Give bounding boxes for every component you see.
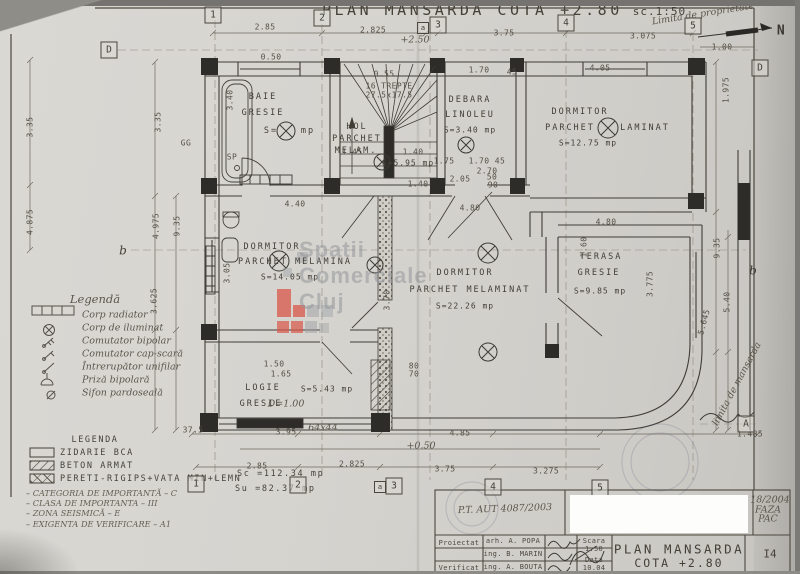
legend-hand-item: Corp de iluminat	[82, 323, 163, 334]
handwritten-label: PAC	[758, 514, 778, 525]
dimension-label: 27.5x17.5	[366, 91, 413, 100]
redaction-box	[570, 495, 748, 533]
dimension-label: 3.75	[494, 29, 515, 38]
ceiling-lamp-icon	[479, 343, 497, 361]
room-label: DORMITOR	[552, 107, 609, 117]
room-label: PARCHET MELAMINA	[238, 257, 352, 267]
axis-grid	[118, 20, 758, 480]
axis-bubble-4: 4	[558, 15, 575, 32]
room-label: S=	[264, 126, 278, 136]
swatch-zidarie	[30, 448, 54, 457]
room-label: PARCHET	[545, 123, 595, 133]
room-label: mp	[301, 126, 315, 136]
room-label: DORMITOR	[437, 268, 494, 278]
ceiling-lamp-icon	[598, 118, 618, 138]
axis-bubble-3: 3	[386, 478, 403, 495]
switch-stair-symbol	[43, 351, 54, 360]
room-label: S=3.40 mp	[444, 126, 496, 135]
axis-bubble-1: 1	[205, 7, 222, 24]
axis-bubble-1: 1	[188, 476, 205, 493]
dimension-label: 3.05	[223, 263, 232, 284]
dimension-label: 1.40	[403, 148, 424, 157]
dimension-label: 2.825	[360, 26, 386, 35]
dimension-label: 3.775	[646, 271, 655, 297]
legend-print-item: BETON ARMAT	[60, 461, 134, 471]
legend-hand-item: Comutator bipolar	[82, 336, 171, 347]
axis-bubble-D: D	[101, 42, 118, 59]
ceiling-lamp-icon	[458, 137, 474, 153]
legend-hand-item: Priză bipolară	[82, 375, 150, 386]
axis-bubble-5: 5	[685, 18, 702, 35]
room-label: PARCHET MELAMINAT	[410, 285, 531, 295]
dimension-label: 0.50	[261, 53, 282, 62]
handwritten-label: +2.50	[400, 35, 429, 46]
dimension-label: 16 TREPTE	[366, 82, 413, 91]
switch-single-symbol	[43, 363, 54, 373]
note-line: – CATEGORIA DE IMPORTANTĂ – C	[26, 488, 177, 498]
drawing-title: PLAN MANSARDA COTA +2.80 sc.1:50	[322, 1, 686, 19]
dimension-label: 1.75	[434, 157, 455, 166]
titleblock-label: 10.04	[583, 564, 606, 572]
axis-bubble-2: 2	[314, 10, 331, 27]
dimension-label: 4.85	[450, 429, 471, 438]
handwritten-label: 64x44	[308, 423, 338, 434]
floor-drain-symbol	[47, 391, 55, 399]
room-label: S=9.85 mp	[574, 287, 626, 296]
dimension-label: 1.65	[271, 370, 292, 379]
dimension-label: 3.625	[150, 288, 159, 314]
room-label: LAMINAT	[620, 123, 670, 133]
dimension-label: 3.35	[154, 112, 163, 133]
dimension-label: 2.85	[255, 23, 276, 32]
dimension-label: 1.975	[722, 77, 731, 103]
dimension-label: 37.5	[183, 426, 204, 435]
titleblock-label: 1:50	[585, 545, 603, 553]
titleblock-label: arh. A. POPA	[486, 537, 540, 545]
legend-hand-item: Întrerupător unifilar	[82, 362, 180, 373]
radiator-symbol	[32, 306, 74, 315]
handwritten-label: +0.50	[406, 441, 435, 452]
titleblock-label: I4	[763, 548, 776, 561]
dimension-label: GG	[181, 139, 191, 148]
note-line: – ZONA SEISMICĂ – E	[26, 508, 120, 518]
axis-bubble-3: 3	[430, 17, 447, 34]
dimension-label: 2.825	[339, 460, 365, 469]
dimension-label: N	[777, 24, 785, 39]
dimension-label: 45	[507, 68, 517, 77]
room-label: PARCHET	[332, 134, 382, 144]
dimension-label: 4.40	[285, 200, 306, 209]
axis-bubble-a: a	[374, 481, 386, 493]
axis-bubble-5: 5	[592, 480, 609, 497]
dimension-label: 4.875	[26, 209, 35, 235]
axis-bubble-D: D	[752, 60, 769, 77]
titleblock-label: Scara	[583, 537, 606, 545]
legend-print-title: LEGENDA	[71, 435, 118, 445]
area-stat-label: Sc =112.34 mp	[237, 469, 324, 479]
axis-bubble-a: a	[417, 22, 429, 34]
dimension-label: SP	[227, 153, 237, 162]
room-label: S=5.95 mp	[382, 159, 434, 168]
titleblock-label: Verificat	[439, 564, 480, 572]
legend-hand-item: Comutator cap-scară	[82, 349, 183, 360]
legend-symbols	[32, 306, 74, 399]
room-label: BAIE	[249, 92, 277, 102]
dimension-label: 4.975	[152, 213, 161, 239]
dimension-label: 3.95	[276, 428, 297, 437]
legend-swatches	[30, 448, 54, 483]
dimension-label: 2.05	[450, 175, 471, 184]
dimension-label: 9.35	[713, 238, 722, 259]
note-line: – EXIGENTA DE VERIFICARE – A1	[26, 519, 171, 529]
axis-bubble-A: A	[738, 416, 755, 433]
dimension-label: 4.80	[460, 204, 481, 213]
dimension-label: 3.75	[435, 465, 456, 474]
room-label: LOGIE	[245, 383, 281, 393]
room-label: S=12.75 mp	[559, 139, 617, 148]
room-label: DEBARA	[449, 95, 492, 105]
legend-hand-item: Corp radiator	[82, 310, 148, 321]
dimension-label: 1.40	[408, 180, 429, 189]
titleblock-label: Data	[585, 556, 603, 564]
dimension-label: 3.40	[226, 90, 235, 111]
axis-bubble-4: 4	[485, 479, 502, 496]
radiator-icon	[206, 246, 215, 294]
dimension-label: 3.35	[26, 117, 35, 138]
axis-bubble-2: 2	[290, 477, 307, 494]
legend-hand-item: Sifon pardoseală	[82, 388, 163, 399]
room-label: S=5.43 mp	[301, 385, 353, 394]
dimension-label: 70	[409, 370, 419, 379]
sink-icon	[223, 212, 239, 228]
room-label: GRESIE	[242, 108, 285, 118]
room-label: MELAM.	[335, 146, 378, 156]
north-arrow-icon	[698, 23, 772, 37]
dimension-label: 5.40	[723, 292, 732, 313]
dimension-label: 3.275	[533, 467, 559, 476]
dimension-label: 3.075	[630, 32, 656, 41]
titleblock-label: PLAN MANSARDA	[614, 542, 744, 557]
dimension-label: 9.35	[173, 216, 182, 237]
legend-hand-title: Legendă	[70, 292, 120, 306]
scanned-floor-plan-sheet: PLAN MANSARDA COTA +2.80 sc.1:50 Legendă…	[0, 0, 800, 574]
room-label: S=14.05 mp	[261, 273, 319, 282]
dimension-label: 90	[488, 181, 498, 190]
radiator-icon	[240, 175, 292, 184]
note-line: – CLASA DE IMPORTANTA – III	[26, 498, 157, 508]
switch-bipolar-symbol	[43, 338, 54, 347]
legend-print-item: ZIDARIE BCA	[60, 448, 134, 458]
room-label: TERASA	[580, 252, 623, 262]
axis-bubble-b: b	[746, 263, 761, 278]
dimension-label: 0.55	[374, 70, 395, 79]
dimension-label: 4.80	[596, 218, 617, 227]
titleblock-label: ing. B. MARIN	[484, 550, 543, 558]
dimension-label: 1.50	[264, 360, 285, 369]
titleblock-label: COTA +2.80	[634, 556, 723, 570]
socket-symbol	[41, 373, 53, 385]
lamp-symbol	[44, 325, 55, 336]
swatch-beton	[30, 461, 54, 470]
room-label: DORMITOR	[244, 242, 301, 252]
room-label: HOL	[346, 122, 367, 132]
ceiling-lamp-icon	[478, 243, 498, 263]
titleblock-label: Proiectat	[439, 539, 480, 547]
dimension-label: 1.00	[712, 43, 733, 52]
page-title: PLAN MANSARDA COTA +2.80	[322, 1, 623, 19]
handwritten-label: D=1.00	[268, 399, 305, 410]
room-label: S=22.26 mp	[436, 302, 494, 311]
room-label: LINOLEU	[445, 110, 495, 120]
ceiling-lamp-icon	[277, 122, 295, 140]
axis-bubble-b: b	[116, 243, 131, 258]
room-label: GRESIE	[578, 268, 621, 278]
dimension-label: 45	[495, 157, 505, 166]
titleblock-label: ing. A. BOUTA	[484, 563, 543, 571]
swatch-rigips	[30, 474, 54, 483]
dimension-label: 1.70	[469, 157, 490, 166]
dimension-label: 4.05	[590, 64, 611, 73]
legend-print-item: PERETI-RIGIPS+VATA MIN+LEMN	[60, 474, 241, 484]
dimension-label: 1.70	[469, 66, 490, 75]
dimension-label: 3.70	[383, 290, 392, 311]
